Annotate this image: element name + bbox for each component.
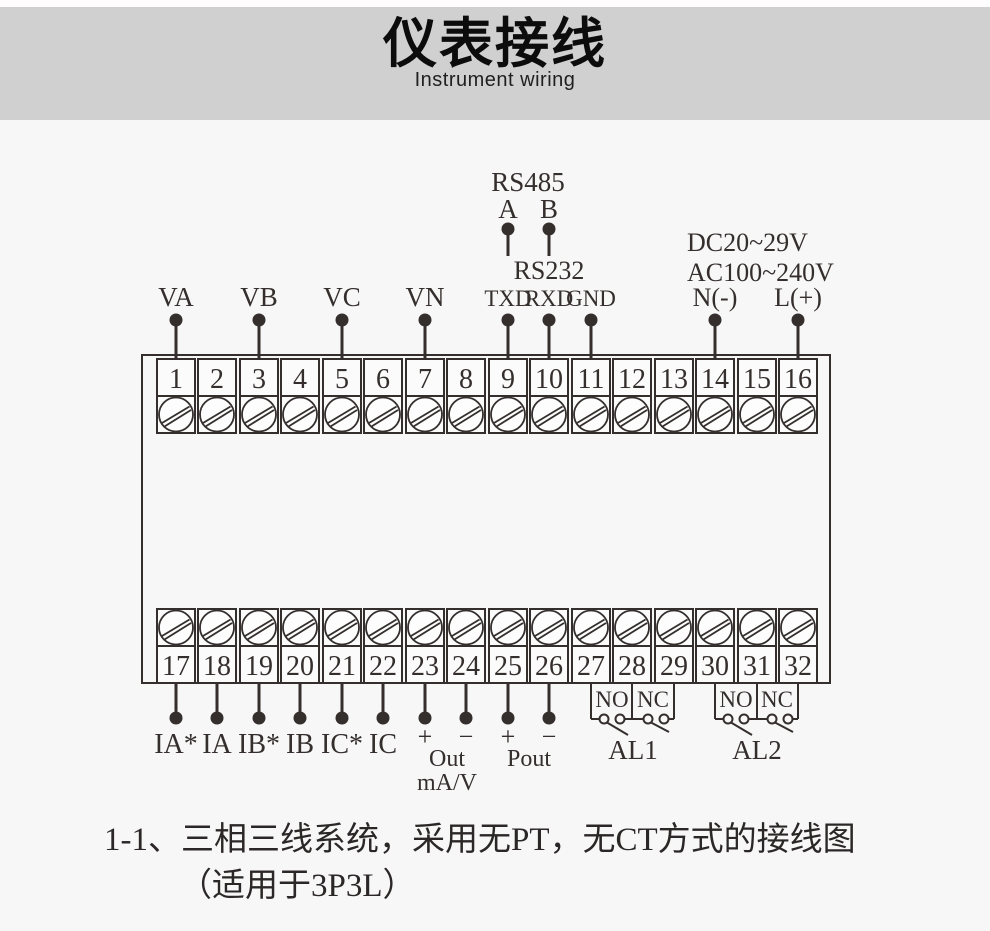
alarm1-name: AL1 <box>608 735 658 765</box>
terminal-number: 20 <box>286 651 314 682</box>
terminal-cell-15: 15 <box>738 359 776 433</box>
terminal-number: 14 <box>701 364 729 395</box>
rs485-pin-b-label: B <box>540 194 558 224</box>
power-live-label: L(+) <box>774 283 822 312</box>
terminal-cell-12: 12 <box>613 359 651 433</box>
screw-icon <box>491 398 525 432</box>
analog-out-name: Out <box>429 746 465 772</box>
label-ic-star: IC* <box>321 729 363 760</box>
screw-icon <box>532 398 566 432</box>
label-vc: VC <box>323 282 361 312</box>
terminal-number: 5 <box>335 364 349 395</box>
screw-icon <box>242 611 276 645</box>
screw-icon <box>740 611 774 645</box>
label-va: VA <box>158 282 194 312</box>
screw-icon <box>283 611 317 645</box>
terminal-number: 13 <box>660 364 688 395</box>
terminal-number: 27 <box>577 651 605 682</box>
terminal-number: 29 <box>660 651 688 682</box>
terminal-cell-4: 4 <box>281 359 319 433</box>
terminal-number: 18 <box>203 651 231 682</box>
page-header: 仪表接线 Instrument wiring <box>0 0 990 120</box>
terminal-number: 30 <box>701 651 729 682</box>
rs232-title: RS232 <box>514 256 585 285</box>
terminal-cell-6: 6 <box>364 359 402 433</box>
analog-output-group: + − Out mA/V <box>417 722 478 796</box>
screw-icon <box>781 398 815 432</box>
terminal-number: 24 <box>452 651 480 682</box>
label-ic: IC <box>369 729 397 760</box>
terminal-cell-31: 31 <box>738 609 776 683</box>
terminal-cell-30: 30 <box>696 609 734 683</box>
screw-icon <box>200 611 234 645</box>
terminal-number: 9 <box>501 364 515 395</box>
terminal-number: 7 <box>418 364 432 395</box>
alarm1-nc-label: NC <box>637 687 669 712</box>
screw-icon <box>657 398 691 432</box>
rs485-pin-a-label: A <box>498 194 518 224</box>
page-title: 仪表接线 <box>0 7 990 75</box>
top-wires <box>176 322 798 359</box>
terminal-cell-18: 18 <box>198 609 236 683</box>
terminal-number: 32 <box>784 651 812 682</box>
screw-icon <box>283 398 317 432</box>
terminal-cell-3: 3 <box>240 359 278 433</box>
terminal-cell-21: 21 <box>323 609 361 683</box>
screw-icon <box>781 611 815 645</box>
power-supply-group: DC20~29V AC100~240V N(-) L(+) <box>687 228 834 312</box>
screw-icon <box>159 611 193 645</box>
caption-line-2: （适用于3P3L） <box>0 864 990 910</box>
alarm2-relay: NO NC AL2 <box>715 683 798 765</box>
screw-icon <box>491 611 525 645</box>
terminal-cell-9: 9 <box>489 359 527 433</box>
terminal-cell-7: 7 <box>406 359 444 433</box>
terminal-number: 16 <box>784 364 812 395</box>
wiring-diagram: RS485 A B RS232 TXD RXD GND DC20~29V AC1… <box>0 120 990 812</box>
screw-icon <box>698 398 732 432</box>
terminal-cell-19: 19 <box>240 609 278 683</box>
screw-icon <box>366 611 400 645</box>
terminal-number: 15 <box>743 364 771 395</box>
terminal-number: 6 <box>376 364 390 395</box>
label-vb: VB <box>240 282 278 312</box>
power-out-name: Pout <box>507 746 551 772</box>
label-ia-star: IA* <box>154 729 198 760</box>
alarm2-name: AL2 <box>732 735 782 765</box>
terminal-number: 19 <box>245 651 273 682</box>
screw-icon <box>698 611 732 645</box>
rs485-title: RS485 <box>491 167 565 197</box>
terminal-number: 10 <box>535 364 563 395</box>
top-wire-dots <box>170 314 805 327</box>
terminal-cell-14: 14 <box>696 359 734 433</box>
terminal-cell-28: 28 <box>613 609 651 683</box>
terminal-cell-29: 29 <box>655 609 693 683</box>
power-output-group: + − Pout <box>501 722 557 772</box>
terminal-number: 17 <box>162 651 190 682</box>
screw-icon <box>449 398 483 432</box>
rs485-group: RS485 A B <box>491 167 565 256</box>
terminal-cell-23: 23 <box>406 609 444 683</box>
top-strip <box>0 0 990 7</box>
terminal-cell-20: 20 <box>281 609 319 683</box>
screw-icon <box>200 398 234 432</box>
terminal-number: 28 <box>618 651 646 682</box>
terminal-number: 25 <box>494 651 522 682</box>
terminal-cell-24: 24 <box>447 609 485 683</box>
terminal-cell-1: 1 <box>157 359 195 433</box>
top-terminal-row: 1 2 3 4 5 6 7 8 9 10 11 12 13 14 15 16 <box>157 359 817 433</box>
terminal-number: 12 <box>618 364 646 395</box>
terminal-cell-17: 17 <box>157 609 195 683</box>
screw-icon <box>449 611 483 645</box>
diagram-caption: 1-1、三相三线系统，采用无PT，无CT方式的接线图 （适用于3P3L） <box>0 818 990 909</box>
alarm1-no-label: NO <box>595 687 628 712</box>
bottom-terminal-row: 17 18 19 20 21 22 23 24 25 26 27 28 29 3… <box>157 609 817 683</box>
alarm2-nc-label: NC <box>761 687 793 712</box>
terminal-number: 26 <box>535 651 563 682</box>
label-ib-star: IB* <box>238 729 280 760</box>
screw-icon <box>408 611 442 645</box>
terminal-number: 23 <box>411 651 439 682</box>
terminal-cell-5: 5 <box>323 359 361 433</box>
terminal-cell-26: 26 <box>530 609 568 683</box>
terminal-number: 8 <box>459 364 473 395</box>
screw-icon <box>242 398 276 432</box>
label-vn: VN <box>406 282 445 312</box>
rs232-group: RS232 TXD RXD GND <box>484 256 616 311</box>
current-input-labels: IA* IA IB* IB IC* IC <box>154 729 397 760</box>
screw-icon <box>325 611 359 645</box>
terminal-cell-13: 13 <box>655 359 693 433</box>
terminal-number: 3 <box>252 364 266 395</box>
terminal-number: 4 <box>293 364 307 395</box>
label-ib: IB <box>286 729 314 760</box>
terminal-number: 22 <box>369 651 397 682</box>
terminal-cell-10: 10 <box>530 359 568 433</box>
terminal-cell-25: 25 <box>489 609 527 683</box>
terminal-cell-32: 32 <box>779 609 817 683</box>
alarm1-relay: NO NC AL1 <box>591 683 674 765</box>
terminal-number: 1 <box>169 364 183 395</box>
terminal-number: 11 <box>578 364 605 395</box>
screw-icon <box>574 398 608 432</box>
terminal-cell-27: 27 <box>572 609 610 683</box>
screw-icon <box>657 611 691 645</box>
header-band: 仪表接线 Instrument wiring <box>0 7 990 120</box>
screw-icon <box>366 398 400 432</box>
screw-icon <box>574 611 608 645</box>
caption-line-1: 1-1、三相三线系统，采用无PT，无CT方式的接线图 <box>0 818 990 864</box>
analog-out-unit: mA/V <box>417 770 478 796</box>
bottom-wire-dots <box>170 712 556 725</box>
screw-icon <box>615 611 649 645</box>
screw-icon <box>740 398 774 432</box>
rs232-gnd-label: GND <box>566 286 616 311</box>
power-neutral-label: N(-) <box>693 283 738 312</box>
terminal-number: 31 <box>743 651 771 682</box>
screw-icon <box>532 611 566 645</box>
screw-icon <box>325 398 359 432</box>
terminal-number: 21 <box>328 651 356 682</box>
alarm2-no-label: NO <box>719 687 752 712</box>
terminal-cell-22: 22 <box>364 609 402 683</box>
screw-icon <box>159 398 193 432</box>
terminal-number: 2 <box>210 364 224 395</box>
bottom-wires <box>176 683 549 712</box>
screw-icon <box>408 398 442 432</box>
terminal-cell-8: 8 <box>447 359 485 433</box>
terminal-cell-2: 2 <box>198 359 236 433</box>
voltage-input-labels: VA VB VC VN <box>158 282 444 312</box>
label-ia: IA <box>202 729 232 760</box>
terminal-cell-11: 11 <box>572 359 610 433</box>
power-dc-label: DC20~29V <box>687 228 808 257</box>
screw-icon <box>615 398 649 432</box>
page-subtitle: Instrument wiring <box>0 69 990 92</box>
terminal-cell-16: 16 <box>779 359 817 433</box>
